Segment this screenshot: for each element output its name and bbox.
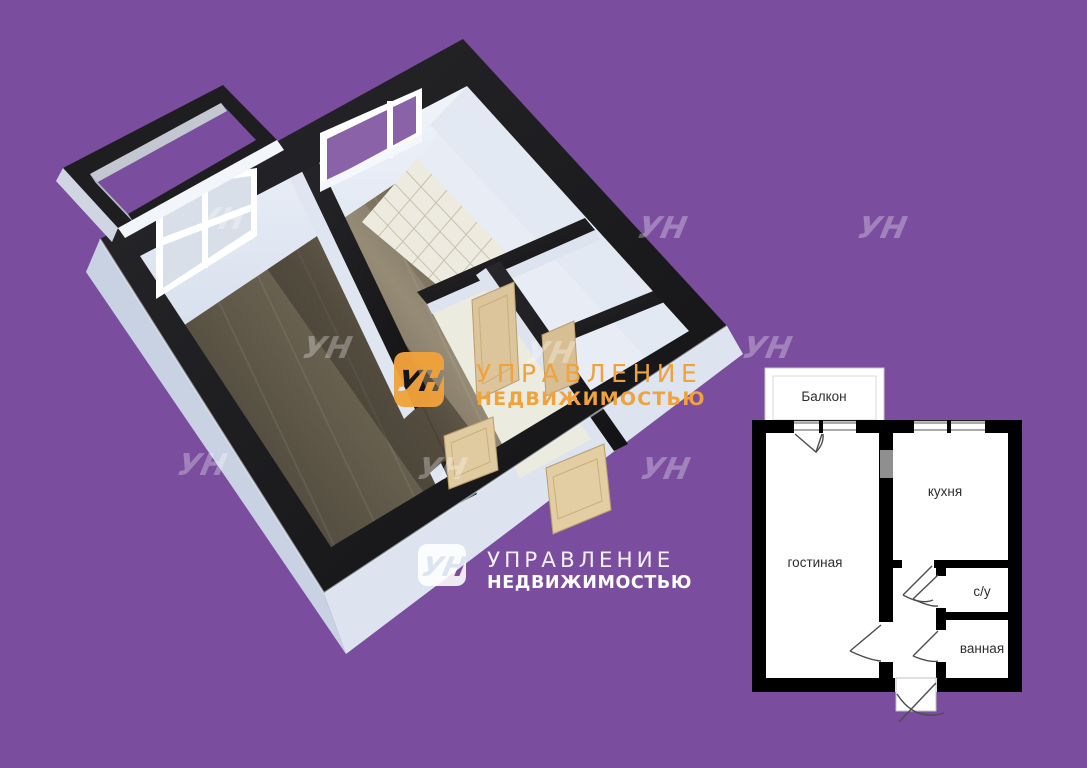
- un-watermark: УН: [192, 202, 248, 237]
- un-watermark: УН: [854, 211, 910, 246]
- un-watermark: УН: [522, 336, 578, 371]
- render-3d: [56, 39, 743, 654]
- un-watermark: УН: [634, 211, 690, 246]
- vent-shaft: [880, 450, 893, 478]
- un-watermark: УН: [637, 452, 693, 487]
- artwork: УН УН: [0, 0, 1087, 768]
- window-mullion-2: [947, 420, 951, 433]
- entrance-opening: [896, 678, 936, 711]
- kitchen-door-3d: [472, 282, 519, 400]
- orange-logo-icon: [394, 352, 444, 407]
- un-watermark: УН: [174, 448, 230, 483]
- un-watermark: УН: [739, 331, 795, 366]
- un-watermark: УН: [414, 452, 470, 487]
- floorplan-2d: [752, 368, 1022, 722]
- listing-image: УН УН: [0, 0, 1087, 768]
- un-watermark: УН: [299, 331, 355, 366]
- white-logo-icon: [418, 544, 466, 586]
- window-mullion-1: [819, 420, 823, 433]
